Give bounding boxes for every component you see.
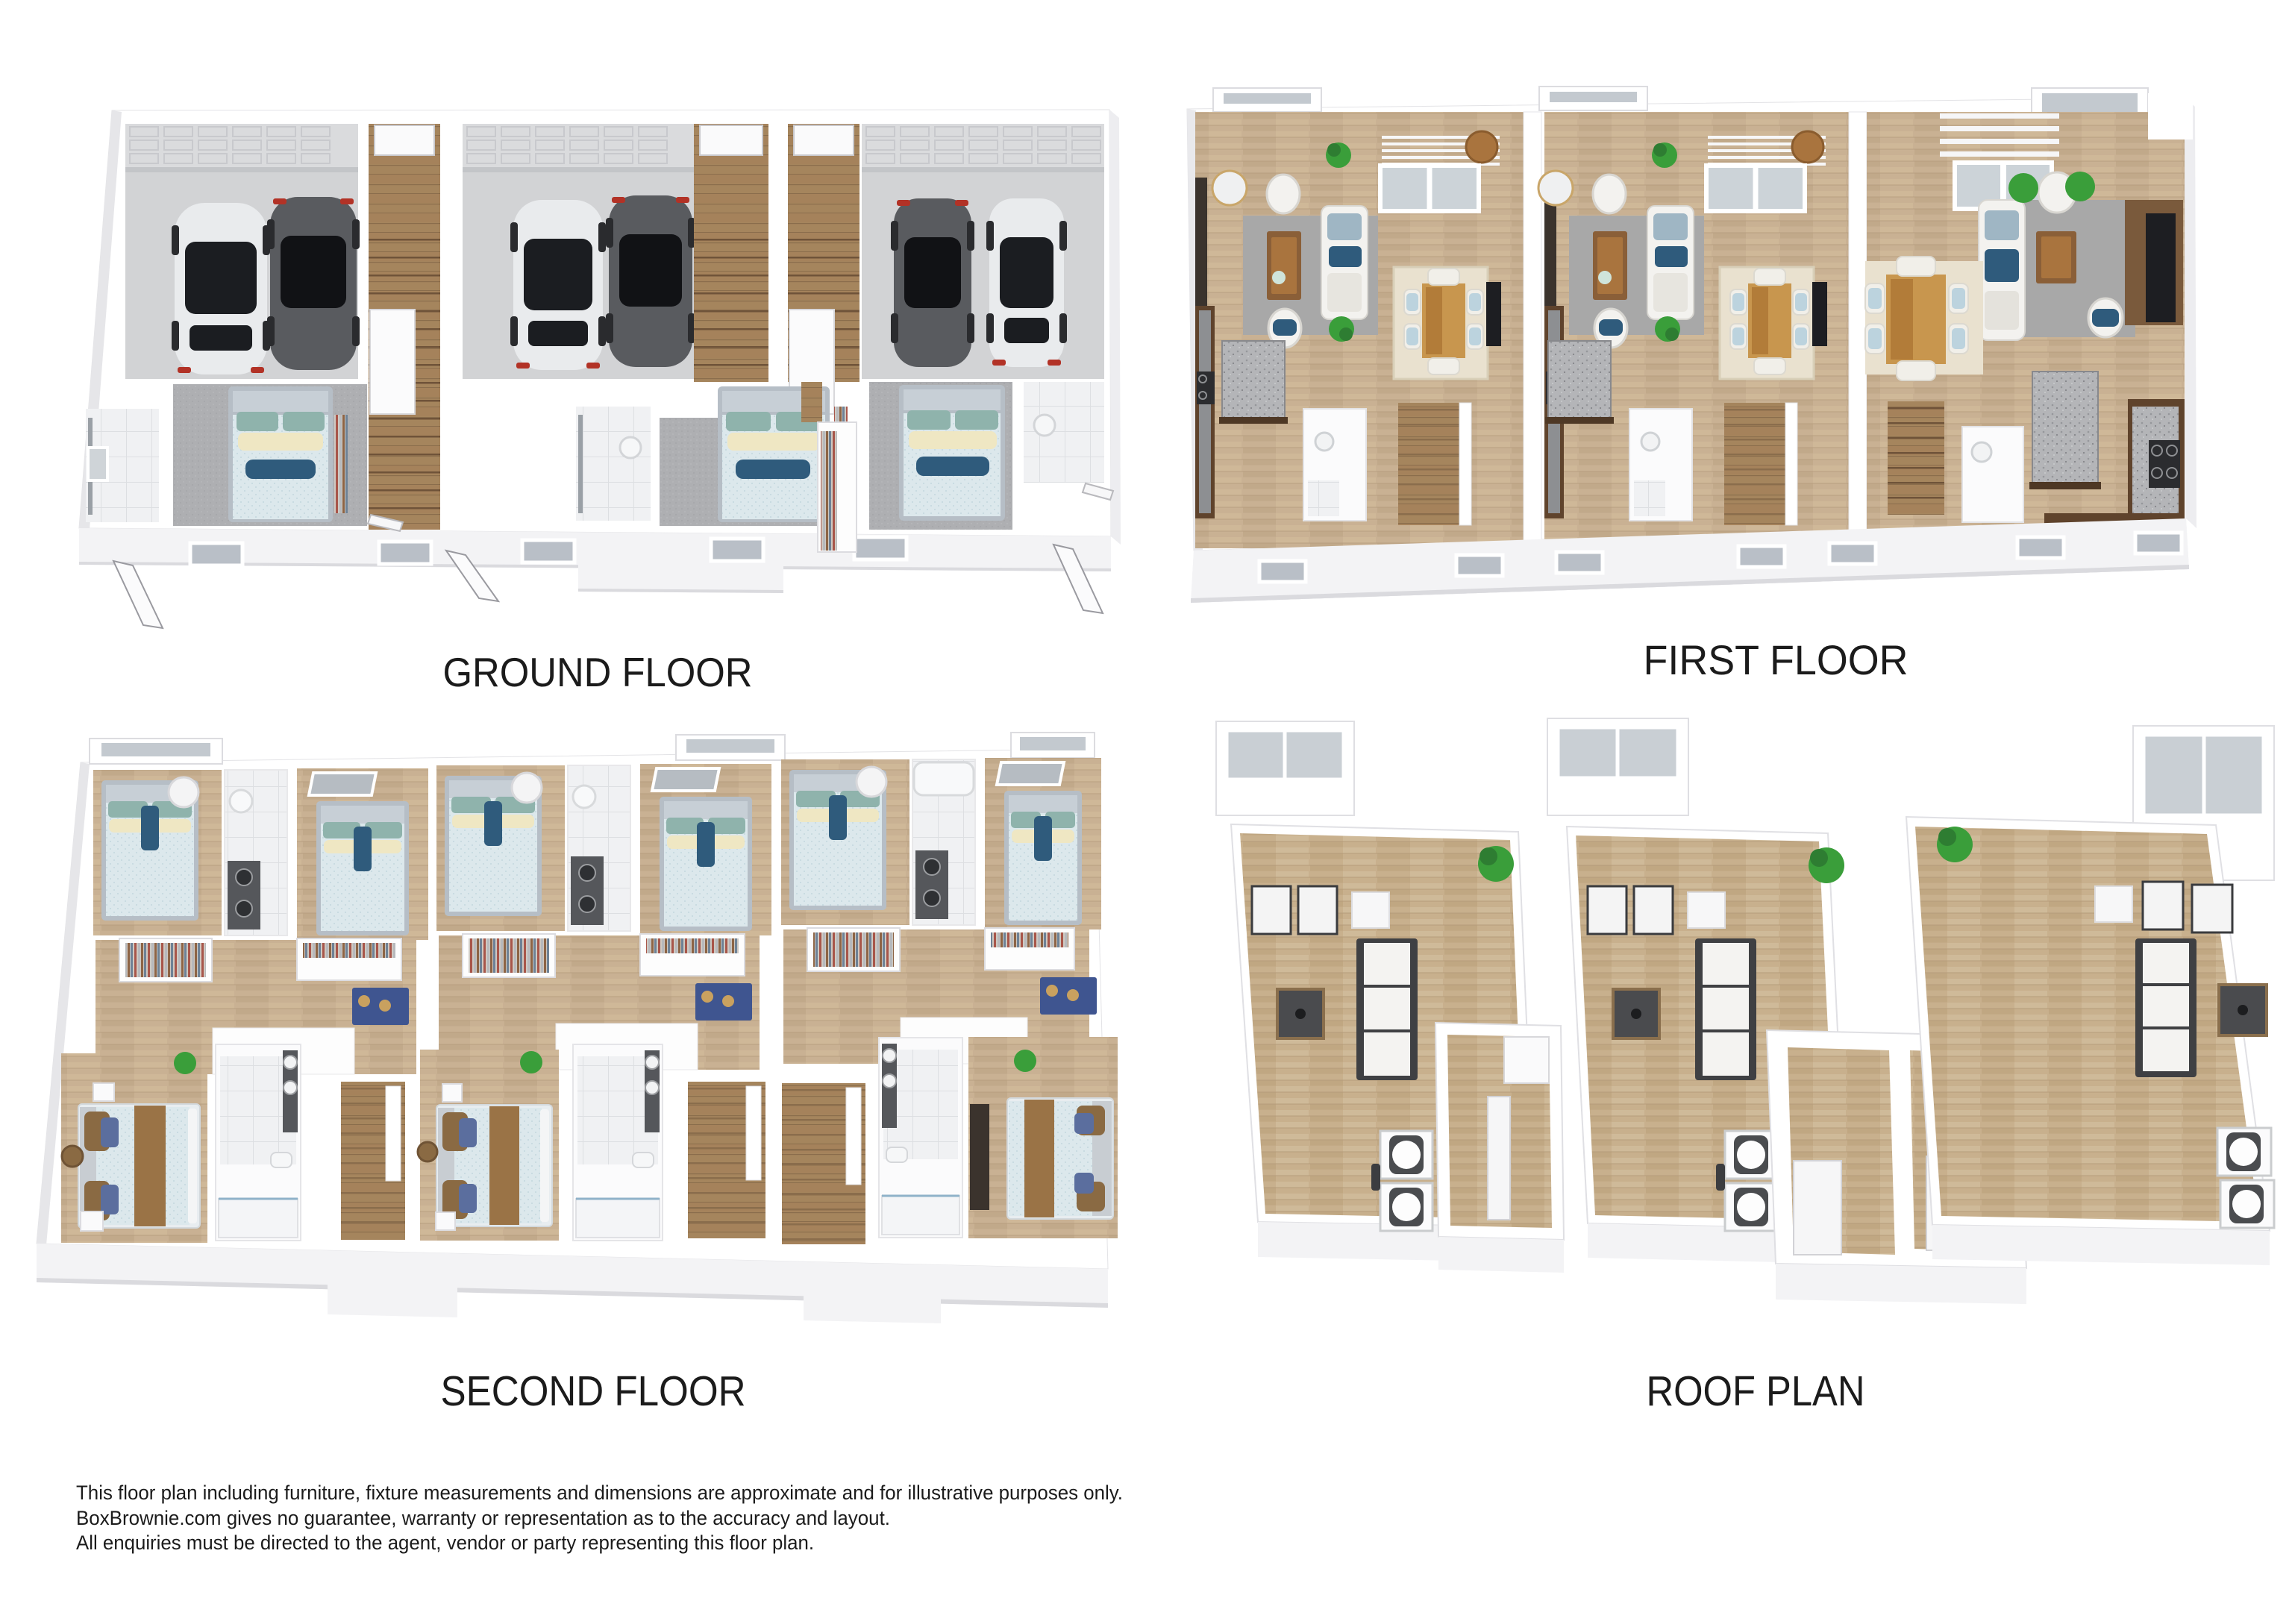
svg-text:FIRST FLOOR: FIRST FLOOR [1644, 636, 1909, 683]
svg-text:GROUND FLOOR: GROUND FLOOR [443, 649, 753, 695]
svg-text:SECOND FLOOR: SECOND FLOOR [441, 1367, 746, 1415]
svg-text:All enquiries must be directed: All enquiries must be directed to the ag… [76, 1531, 814, 1554]
svg-text:ROOF PLAN: ROOF PLAN [1647, 1367, 1865, 1415]
svg-text:This floor plan including furn: This floor plan including furniture, fix… [76, 1482, 1123, 1504]
svg-text:BoxBrownie.com gives no guaran: BoxBrownie.com gives no guarantee, warra… [76, 1507, 890, 1529]
